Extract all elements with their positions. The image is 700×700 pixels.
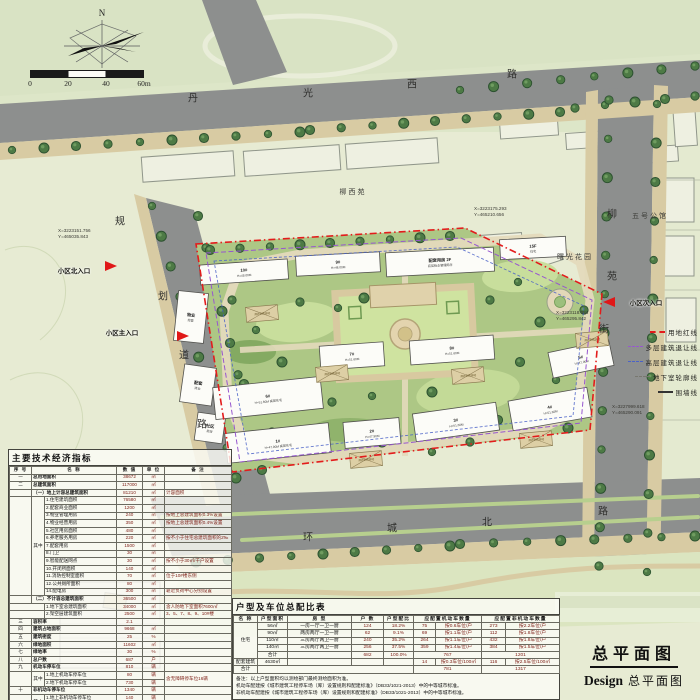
tree-icon — [624, 534, 632, 542]
legend-line-sample — [628, 361, 643, 362]
cell: 四 — [10, 626, 32, 634]
tree-icon — [691, 62, 699, 70]
cell: ㎡ — [143, 512, 165, 520]
cell: 按2.2车位/户 — [506, 623, 560, 630]
cell: 备 注 — [165, 467, 232, 475]
tree-icon — [228, 296, 236, 304]
cell: 4630㎡ — [258, 659, 288, 666]
cell: 按1.5车位/户 — [506, 644, 560, 651]
tree-icon — [591, 73, 599, 81]
cell: 三 — [10, 618, 32, 626]
tree-icon — [231, 473, 241, 483]
cell: 按不小于住宅总建筑面积的2‰ — [165, 535, 232, 543]
roundabout-island — [555, 297, 566, 308]
tree-icon — [455, 539, 464, 548]
tree-icon — [630, 97, 640, 107]
cell: 90㎡ — [258, 630, 288, 637]
cell: 户 — [143, 656, 165, 664]
cell: % — [143, 634, 165, 642]
coord-y: Y=465035.843 — [58, 234, 91, 240]
table-row: 2.架空层建筑面积2500㎡3、5、7、8、9、10#楼 — [10, 611, 232, 619]
tree-icon — [337, 124, 345, 132]
note-line: 备注：以上户型面积均以测绘部门最终测绘面积为准。 — [236, 676, 556, 683]
tree-icon — [601, 251, 609, 259]
cell — [143, 618, 165, 626]
cell: ㎡ — [143, 527, 165, 535]
cell: 辆 — [143, 694, 165, 700]
cell: 38672 — [117, 474, 143, 482]
tree-icon — [415, 233, 425, 243]
scale-tick-label: 60m — [137, 79, 150, 88]
scale-bar: 0204060m — [30, 70, 144, 78]
table-row: 五建筑密度25% — [10, 634, 232, 642]
cell: 1340 — [117, 687, 143, 695]
cell: 名 称 — [32, 467, 117, 475]
cell: 81210 — [117, 489, 143, 497]
cell: 350 — [117, 520, 143, 528]
building-height-label: H=48.00M — [331, 265, 346, 270]
cell: 75 — [414, 623, 436, 630]
tree-icon — [199, 133, 208, 142]
building-label: 15F — [529, 243, 537, 248]
cell: 计容面积 — [165, 489, 232, 497]
tree-icon — [156, 231, 166, 241]
tree-icon — [598, 446, 606, 454]
road-name-char: 北 — [482, 514, 492, 529]
cell: 七 — [10, 649, 32, 657]
cell: 两房两厅一卫一厨 — [288, 630, 352, 637]
cell: 户型面积 — [258, 616, 288, 623]
cell: 辆 — [143, 664, 165, 672]
road-name-char: 光 — [303, 85, 313, 100]
cell: 480 — [117, 527, 143, 535]
tree-icon — [653, 100, 661, 108]
tree-icon — [523, 79, 532, 88]
cell — [258, 666, 414, 673]
legend-item: 高层建筑退让线 — [604, 354, 698, 369]
cell — [352, 659, 384, 666]
table-row: 90㎡两房两厅一卫一厨629.1%69按1.1车位/户112按1.8车位/户 — [234, 630, 560, 637]
tree-icon — [456, 86, 464, 94]
cell: ㎡ — [143, 603, 165, 611]
cell: 730 — [117, 679, 143, 687]
road-name-char: 西 — [407, 76, 417, 91]
tree-icon — [296, 298, 304, 306]
cell: 18.2% — [384, 623, 414, 630]
cell: 264 — [414, 637, 436, 644]
drawing-subtitle-cn: 总平面图 — [628, 674, 684, 688]
cell: 36500 — [117, 596, 143, 604]
table-row: 名 称户型面积房 型户 数户型配比应配置机动车数量应配置非机动车数量 — [234, 616, 560, 623]
tree-icon — [602, 173, 612, 183]
coord-y: Y=465210.656 — [474, 212, 507, 218]
entrance-label: 小区次入口 — [630, 297, 663, 307]
legend-line-sample — [635, 376, 650, 377]
tree-icon — [382, 546, 390, 554]
cell: 合计 — [234, 666, 258, 673]
cell: 56㎡ — [258, 623, 288, 630]
cell: 25 — [117, 634, 143, 642]
cell — [165, 664, 232, 672]
building-height-label: 商业 — [194, 385, 201, 391]
cell: 70 — [117, 573, 143, 581]
cell: 359 — [414, 644, 436, 651]
cell: 总用地面积 — [32, 474, 117, 482]
tree-icon — [660, 94, 669, 103]
coordinate-label: X=3227999.618Y=465290.091 — [612, 404, 645, 415]
cell — [165, 626, 232, 634]
tree-icon — [369, 122, 377, 130]
coord-y: Y=465290.091 — [612, 410, 645, 416]
road-name-char: 划 — [158, 288, 168, 303]
coord-x: X=3227999.618 — [612, 404, 645, 410]
cell — [10, 489, 32, 497]
cell: 11.消防控制室面积 — [45, 573, 117, 581]
tree-icon — [556, 536, 566, 546]
cell: 总户数 — [32, 656, 117, 664]
road-name-char: 道 — [179, 347, 189, 362]
econ-table-title: 主要技术经济指标 — [9, 450, 231, 466]
cell: 六 — [10, 641, 32, 649]
area-label: 柳西苑 — [340, 187, 367, 197]
tree-icon — [595, 562, 603, 570]
coord-x: X=3223151.756 — [58, 228, 91, 234]
cell: 按1.1车位/户 — [436, 637, 482, 644]
cell: 三房两厅两卫一厨 — [288, 637, 352, 644]
scale-tick-label: 40 — [102, 79, 110, 88]
tree-icon — [651, 177, 660, 186]
legend-item-label: 围墙线 — [676, 387, 699, 397]
cell: ㎡ — [143, 474, 165, 482]
scale-tick-label: 20 — [64, 79, 72, 88]
legend-line-sample — [658, 391, 673, 393]
table-row: 合计7811317 — [234, 666, 560, 673]
table-row: 六绿地面积11602㎡ — [10, 641, 232, 649]
tree-icon — [232, 132, 240, 140]
cell: 按1.8车位/户 — [506, 637, 560, 644]
tree-icon — [644, 489, 653, 498]
tree-icon — [494, 113, 502, 121]
cell: 其中 — [32, 497, 45, 596]
cell: 112 — [482, 630, 506, 637]
tree-icon — [8, 146, 16, 154]
cell: ㎡ — [143, 588, 165, 596]
cell: ㎡ — [143, 542, 165, 550]
drawing-title-block: 总平面图 Design 总平面图 — [572, 640, 696, 689]
cell: 100.0% — [384, 651, 414, 658]
legend-item-label: 用地红线 — [668, 327, 698, 337]
road-name-char: 环 — [303, 529, 313, 544]
cell: 容积率 — [32, 618, 117, 626]
tree-icon — [277, 357, 287, 367]
cell: 按地上总建筑面积0.4%设置 — [165, 520, 232, 528]
tree-icon — [524, 109, 534, 119]
cell: ㎡ — [143, 535, 165, 543]
cell: 应配置非机动车数量 — [482, 616, 560, 623]
cell: 11602 — [117, 641, 143, 649]
fire-lane-pad: 消防登高场地 — [245, 305, 278, 323]
tree-icon — [557, 76, 565, 84]
cell: ㎡ — [143, 565, 165, 573]
cell: 三房两厅两卫一厨 — [288, 644, 352, 651]
cell: 781 — [414, 666, 482, 673]
cell: 单 位 — [143, 467, 165, 475]
cell: 含无障碍停车位16辆 — [165, 672, 232, 687]
tree-icon — [690, 531, 700, 541]
cell: ㎡ — [143, 550, 165, 558]
cell: 240 — [352, 637, 384, 644]
tree-icon — [414, 544, 422, 552]
road-name-char: 柳 — [607, 206, 617, 221]
compass-rose: N — [40, 6, 160, 75]
cell: 687 — [117, 656, 143, 664]
tree-icon — [328, 398, 336, 406]
tree-icon — [535, 317, 545, 327]
coord-x: X=3223118.084 — [556, 310, 588, 316]
road-name-char: 路 — [598, 503, 608, 518]
cell: 二 — [10, 482, 32, 490]
entrance-label: 小区主入口 — [106, 327, 139, 337]
road-name-char: 丹 — [188, 90, 198, 105]
cell: （一）地上计容总建筑面积 — [32, 489, 117, 497]
cell: 5.社区用房面积 — [45, 527, 117, 535]
tree-icon — [590, 535, 599, 544]
building: 2#H=47.90M — [343, 418, 401, 449]
cell: 9668 — [117, 626, 143, 634]
tree-icon — [166, 262, 175, 271]
tree-icon — [295, 240, 305, 250]
table-row: 序 号名 称数 值单 位备 注 — [10, 467, 232, 475]
drawing-subtitle-en: Design — [584, 673, 623, 688]
legend-item-label: 多层建筑退让线 — [646, 342, 699, 352]
cell: 6.养老服务用房 — [45, 535, 117, 543]
cell — [165, 634, 232, 642]
cell: （二）不计容总建筑面积 — [32, 596, 117, 604]
cell: 一 — [10, 474, 32, 482]
tree-icon — [596, 483, 606, 493]
drawing-title: 总平面图 — [590, 640, 678, 668]
tree-icon — [605, 96, 613, 104]
entrance-label: 小区北入口 — [58, 265, 91, 275]
cell: 3.物业管理用房 — [45, 512, 117, 520]
cell — [288, 651, 352, 658]
table-row: 配套建筑4630㎡14按0.3车位/100㎡116按2.5车位/100㎡ — [234, 659, 560, 666]
cell — [10, 672, 32, 687]
cell: 14.配电房 — [45, 588, 117, 596]
table-row: （二）不计容总建筑面积36500㎡ — [10, 596, 232, 604]
cell: 建筑密度 — [32, 634, 117, 642]
legend-item: 围墙线 — [604, 384, 698, 399]
table-row: 住宅56㎡一房一厅一卫一厨12418.2%75按0.6车位/户273按2.2车位… — [234, 623, 560, 630]
cell: 80 — [117, 672, 143, 680]
cell: 240 — [117, 512, 143, 520]
cell — [288, 659, 352, 666]
cell — [10, 611, 45, 619]
table-row: 110㎡三房两厅两卫一厨24035.2%264按1.1车位/户432按1.8车位… — [234, 637, 560, 644]
cell — [165, 580, 232, 588]
cell: 34000 — [117, 603, 143, 611]
cell — [165, 565, 232, 573]
area-label: 曙光花园 — [557, 252, 593, 262]
legend-item-label: 地下室轮廓线 — [653, 372, 698, 382]
cell: 按0.3车位/100㎡ — [436, 659, 482, 666]
cell: ㎡ — [143, 504, 165, 512]
cell: 80 — [117, 580, 143, 588]
road-name-char: 路 — [507, 66, 517, 81]
cell — [165, 504, 232, 512]
tree-icon — [604, 135, 612, 143]
table-row: 九机动车停车位810辆 — [10, 664, 232, 672]
tree-icon — [523, 538, 531, 546]
table-row: 合计682100.0%7671201 — [234, 651, 560, 658]
tree-icon — [104, 140, 112, 148]
cell: 1.住宅建筑面积 — [45, 497, 117, 505]
cell: % — [143, 649, 165, 657]
tree-icon — [225, 338, 234, 347]
cell — [165, 649, 232, 657]
legend-item: 多层建筑退让线 — [604, 339, 698, 354]
cell: 30 — [117, 649, 143, 657]
cell: 按0.6车位/户 — [436, 623, 482, 630]
cell — [10, 694, 32, 700]
coordinate-label: X=3223151.756Y=465035.843 — [58, 228, 91, 239]
cell: 256 — [352, 644, 384, 651]
tree-icon — [515, 357, 524, 366]
cell — [165, 550, 232, 558]
cell: 1500 — [117, 542, 143, 550]
cell: 30 — [117, 550, 143, 558]
cell: 62 — [352, 630, 384, 637]
cell: 按1.8车位/户 — [506, 630, 560, 637]
area-label: 五号公馆 — [632, 211, 668, 221]
cell: 辆 — [143, 687, 165, 695]
tree-icon — [644, 529, 652, 537]
cell: 110㎡ — [258, 637, 288, 644]
cell: ㎡ — [143, 497, 165, 505]
cell: 数 值 — [117, 467, 143, 475]
cell: 140 — [117, 694, 143, 700]
cell: 140㎡ — [258, 644, 288, 651]
cell: 九 — [10, 664, 32, 672]
cell: 10.开闭所面积 — [45, 565, 117, 573]
cell: 9.智能配送网点 — [45, 558, 117, 566]
tree-icon — [486, 296, 494, 304]
legend-item-label: 高层建筑退让线 — [646, 357, 699, 367]
coordinate-label: X=3223118.084Y=465295.842 — [556, 310, 588, 321]
tree-icon — [658, 533, 666, 541]
cell: 3、5、7、8、9、10#楼 — [165, 611, 232, 619]
cell: 按地上总建筑面积0.3%设置 — [165, 512, 232, 520]
cell: 名 称 — [234, 616, 258, 623]
cell: ㎡ — [143, 626, 165, 634]
cell: 1.地上机动车停车位 — [45, 672, 117, 680]
cell — [165, 482, 232, 490]
cell: 69 — [414, 630, 436, 637]
tree-icon — [428, 448, 436, 456]
tree-icon — [252, 326, 260, 334]
tree-icon — [657, 65, 666, 74]
cell — [10, 497, 32, 596]
cell: 2.1 — [117, 618, 143, 626]
tree-icon — [359, 293, 369, 303]
building-height-label: 用房 — [206, 428, 213, 434]
table-row: 三容积率2.1 — [10, 618, 232, 626]
tree-icon — [217, 306, 227, 316]
cell: 十 — [10, 687, 32, 695]
tree-icon — [430, 116, 439, 125]
cell: 其中 — [32, 672, 45, 687]
tree-icon — [318, 549, 328, 559]
cell — [165, 497, 232, 505]
fire-lane-pad: 消防登高场地 — [315, 365, 348, 383]
cell: 绿地率 — [32, 649, 117, 657]
cell: ㎡ — [143, 520, 165, 528]
cell: 35.2% — [384, 637, 414, 644]
cell: 八 — [10, 656, 32, 664]
cell: 1201 — [482, 651, 560, 658]
tree-icon — [644, 450, 654, 460]
tree-icon — [39, 143, 49, 153]
cell: 76580 — [117, 497, 143, 505]
cell: 按不小于30㎡/千户设置 — [165, 558, 232, 566]
tree-icon — [651, 138, 661, 148]
cell: 7.配套用房 — [45, 542, 117, 550]
cell: 非机动车停车位 — [32, 687, 117, 695]
cell: ㎡ — [143, 580, 165, 588]
cell: ㎡ — [143, 641, 165, 649]
tree-icon — [305, 125, 314, 134]
tree-icon — [514, 278, 522, 286]
cell: 机动车停车位 — [32, 664, 117, 672]
table-row: 其中1.住宅建筑面积76580㎡ — [10, 497, 232, 505]
cell: 户型配比 — [384, 616, 414, 623]
building-height-label: 住宅 — [530, 248, 536, 253]
tree-icon — [264, 130, 272, 138]
scale-bar-segments — [30, 70, 144, 78]
cell: 1.地上非机动车停车位 — [45, 694, 117, 700]
watercolor-band2 — [560, 596, 700, 608]
tree-icon — [643, 568, 651, 576]
road-name-char: 规 — [115, 213, 125, 228]
cell: 384 — [482, 644, 506, 651]
cell — [165, 641, 232, 649]
coordinate-label: X=3223175.293Y=465210.656 — [474, 206, 507, 217]
cell: 116 — [482, 659, 506, 666]
cell: 767 — [414, 651, 482, 658]
table-row: （一）地上计容总建筑面积81210㎡计容面积 — [10, 489, 232, 497]
building: 配套商业 — [180, 364, 217, 406]
cell: 辆 — [143, 679, 165, 687]
tree-icon — [595, 523, 604, 532]
economic-indicators-table: 主要技术经济指标 序 号名 称数 值单 位备 注一总用地面积38672㎡二总建筑… — [8, 449, 232, 700]
table-row: 1.地下室总建筑面积34000㎡含人防地下室面积7600㎡ — [10, 603, 232, 611]
tree-icon — [71, 141, 80, 150]
cell — [165, 694, 232, 700]
tree-icon — [334, 304, 342, 312]
tree-icon — [257, 465, 266, 474]
cell: 30 — [117, 558, 143, 566]
cell: 含人防地下室面积7600㎡ — [165, 603, 232, 611]
unit-parking-table: 户型及车位总配比表 名 称户型面积房 型户 数户型配比应配置机动车数量应配置非机… — [232, 598, 560, 700]
cell — [165, 687, 232, 695]
tree-icon — [691, 92, 699, 100]
fire-lane-pad: 消防登高场地 — [451, 367, 484, 385]
cell: 应配置机动车数量 — [414, 616, 482, 623]
cell: 户 数 — [352, 616, 384, 623]
cell: 9.1% — [384, 630, 414, 637]
legend-line-sample — [628, 346, 643, 347]
cell: 1317 — [482, 666, 560, 673]
